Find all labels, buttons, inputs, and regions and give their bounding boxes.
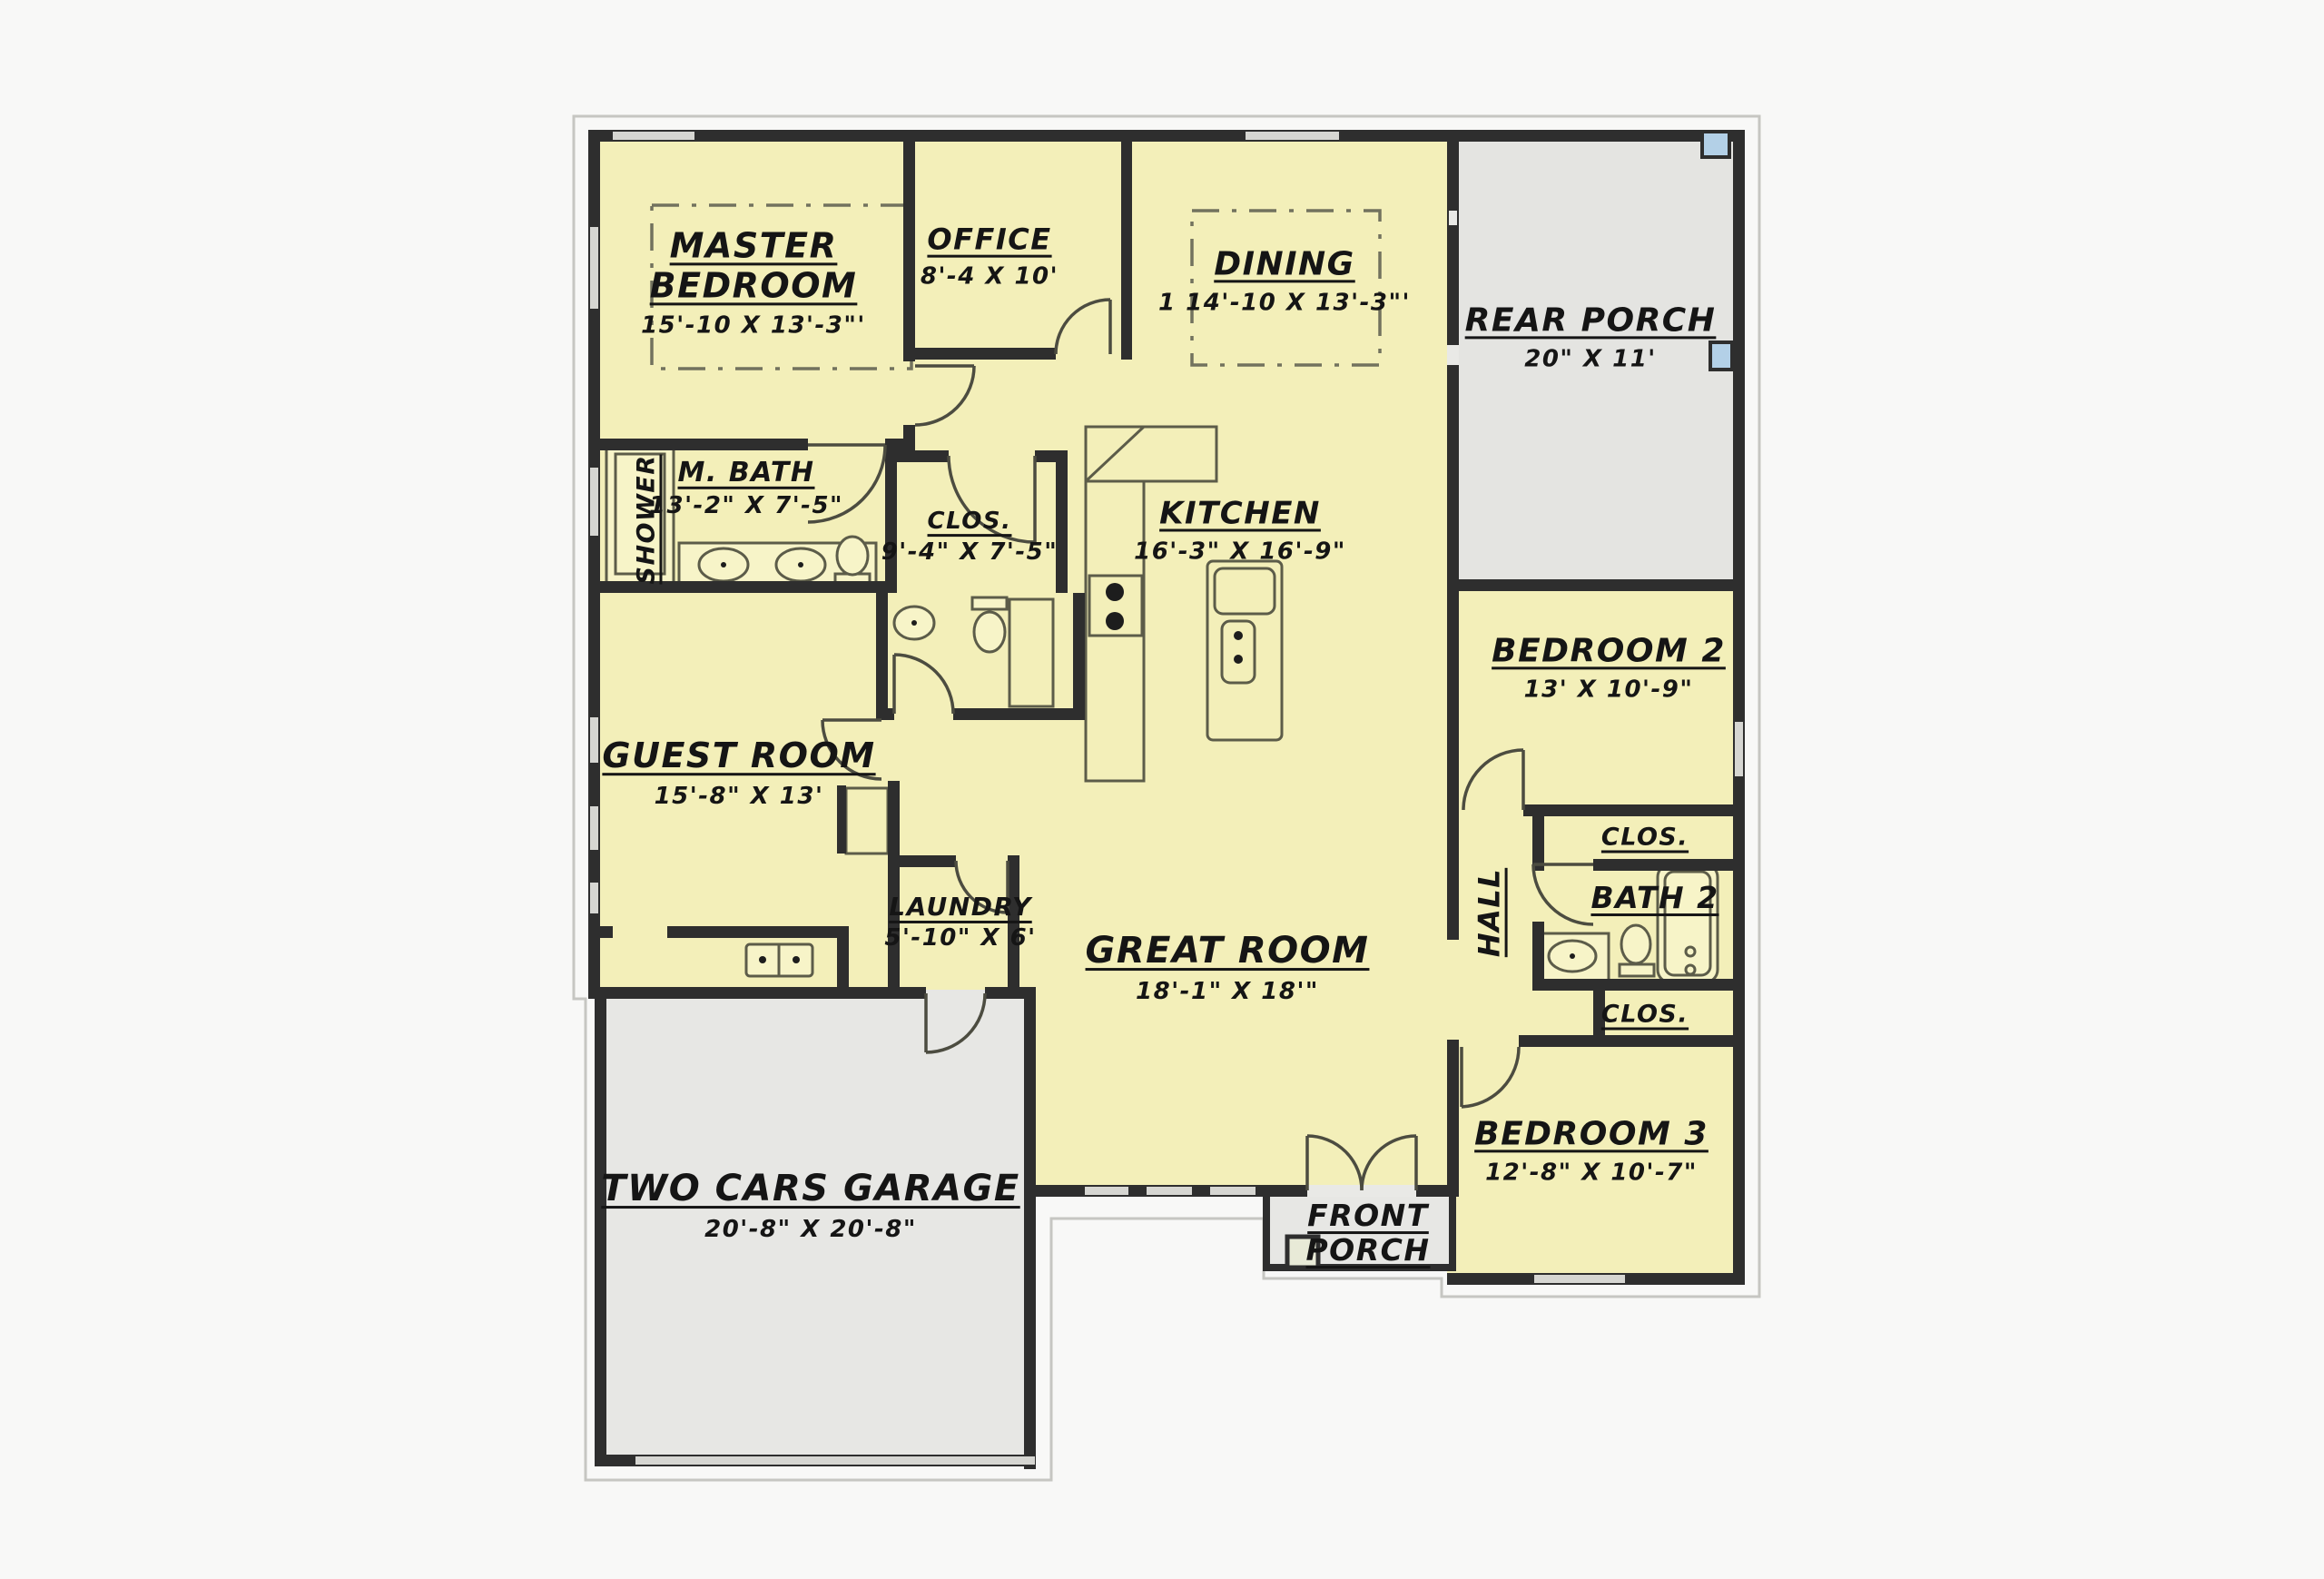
room-label-garage: TWO CARS GARAGE 20'-8" X 20'-8" [601, 1168, 1019, 1244]
room-name: CLOS. [1601, 1000, 1689, 1028]
window-guest-left-a [590, 717, 598, 763]
wall-garage-top-b [985, 987, 1036, 999]
room-name: BATH 2 [1590, 881, 1718, 915]
wall-closet-top-b [1035, 450, 1056, 462]
room-label-hall: HALL [1473, 868, 1507, 957]
wall-guest-bottom [667, 926, 849, 938]
room-dims: 1 14'-10 X 13'-3"' [1158, 291, 1411, 318]
room-label-rear-porch: REAR PORCH 20" X 11' [1465, 301, 1717, 373]
wall-wing-right [1733, 130, 1745, 1285]
wall-garage-top-a [588, 987, 926, 999]
wall-laundry-top [888, 855, 956, 867]
wall-office-right [1121, 142, 1132, 360]
wall-hallbath-bottom-b [953, 708, 1085, 720]
wall-top [588, 130, 1745, 142]
window-greatroom-b [1147, 1187, 1192, 1195]
room-dims: 13'-2" X 7'-5" [649, 492, 843, 519]
window-greatroom-c [1210, 1187, 1256, 1195]
wall-closTop-bath2 [1593, 859, 1745, 871]
toilet-tank-hall [972, 597, 1007, 609]
wall-bed2-bottom [1523, 804, 1745, 816]
window-greatroom-a [1085, 1187, 1128, 1195]
wall-guest-bottom-stub [600, 926, 613, 938]
window-shower-left [590, 468, 598, 536]
room-label-office: OFFICE 8'-4 X 10' [921, 223, 1059, 291]
wall-office-bottom [903, 348, 1056, 360]
room-dims: 12'-8" X 10'-7" [1474, 1160, 1709, 1188]
window-bed2-right [1735, 722, 1743, 776]
toilet-bowl-master [837, 537, 868, 575]
knob-dot [793, 956, 800, 963]
wall-hallbath-bottom-a [876, 708, 894, 720]
burner-dot [1106, 612, 1124, 630]
window-porch-divider-a [1449, 211, 1457, 225]
faucet-dot [721, 562, 726, 567]
door-porch-divider [1447, 345, 1459, 365]
room-dims: 16'-3" X 16'-9" [1134, 539, 1346, 567]
window-master-left [590, 227, 598, 309]
room-dims: 13' X 10'-9" [1492, 677, 1726, 705]
room-name: DINING [1158, 245, 1411, 282]
toilet-bowl-bath2 [1621, 925, 1650, 963]
wall-divider-lower [1447, 1040, 1459, 1197]
room-dims: 5'-10" X 6' [884, 925, 1036, 952]
room-label-closet-bottom: CLOS. [1601, 1000, 1689, 1028]
room-label-bath-2: BATH 2 [1590, 881, 1718, 915]
window-guest-left-b [590, 806, 598, 850]
faucet-dot [911, 620, 917, 626]
room-name: FRONT PORCH [1286, 1199, 1450, 1268]
room-name: SHOWER [632, 454, 660, 584]
window-dining-top [1246, 132, 1339, 140]
room-name: OFFICE [921, 223, 1059, 257]
room-name: MASTER BEDROOM [640, 226, 867, 305]
wall-divider-mid [1447, 365, 1459, 940]
burner-dot [1234, 655, 1243, 664]
room-label-laundry: LAUNDRY 5'-10" X 6' [884, 893, 1036, 952]
room-label-master-closet: CLOS. 9'-4" X 7'-5" [881, 508, 1059, 567]
wall-master-right-b [903, 425, 915, 450]
burner-dot [1234, 631, 1243, 640]
burner-dot [1106, 583, 1124, 601]
room-name: GUEST ROOM [602, 736, 875, 776]
room-name: CLOS. [881, 508, 1059, 536]
window-guest-left-c [590, 883, 598, 913]
room-name: M. BATH [649, 458, 843, 489]
wall-closTop-left [1532, 804, 1544, 871]
room-dims: 20" X 11' [1465, 347, 1717, 374]
room-dims: 20'-8" X 20'-8" [601, 1217, 1019, 1244]
room-label-m-bath: M. BATH 13'-2" X 7'-5" [649, 458, 843, 519]
room-name: REAR PORCH [1465, 301, 1717, 339]
room-label-guest-room: GUEST ROOM 15'-8" X 13' [602, 736, 875, 811]
room-name: LAUNDRY [884, 893, 1036, 922]
room-name: HALL [1473, 868, 1507, 957]
room-name: GREAT ROOM [1086, 930, 1370, 972]
garage-door-band [635, 1456, 1035, 1465]
room-label-dining: DINING 1 14'-10 X 13'-3"' [1158, 245, 1411, 317]
knob-dot [759, 956, 766, 963]
room-label-bedroom-2: BEDROOM 2 13' X 10'-9" [1492, 632, 1726, 704]
room-dims: 18'-1" X 18'" [1086, 979, 1370, 1006]
wall-mbath-top-a [588, 439, 808, 450]
wall-guest-closet-b [888, 781, 900, 867]
wall-divider-upper [1447, 130, 1459, 345]
wall-garage-right [1024, 990, 1036, 1469]
room-dims: 15'-10 X 13'-3"' [640, 313, 867, 340]
window-master-top [613, 132, 694, 140]
faucet-dot [798, 562, 803, 567]
wall-hallbath-right [1073, 593, 1085, 720]
porch-post-blue-a [1702, 132, 1729, 157]
room-label-bedroom-3: BEDROOM 3 12'-8" X 10'-7" [1474, 1115, 1709, 1187]
room-name: TWO CARS GARAGE [601, 1168, 1019, 1209]
room-label-great-room: GREAT ROOM 18'-1" X 18'" [1086, 930, 1370, 1006]
wall-porch-bed2 [1447, 579, 1745, 591]
room-name: KITCHEN [1134, 497, 1346, 532]
toilet-bowl-hall [974, 612, 1005, 652]
wall-bath2-bottom [1532, 979, 1745, 991]
room-dims: 8'-4 X 10' [921, 263, 1059, 291]
floor-plan-drawing [0, 0, 2324, 1579]
room-label-closet-top: CLOS. [1601, 823, 1689, 851]
wall-bath2-left [1532, 922, 1544, 991]
wall-master-right-a [903, 130, 915, 361]
wall-closBottom-bed3 [1519, 1035, 1745, 1047]
room-name: BEDROOM 2 [1492, 632, 1726, 669]
wall-guest-bottom-drop [837, 938, 849, 990]
room-name: BEDROOM 3 [1474, 1115, 1709, 1152]
room-label-master-bedroom: MASTER BEDROOM 15'-10 X 13'-3"' [640, 226, 867, 340]
window-bed3-bottom [1534, 1275, 1625, 1283]
wall-hallbath-left [876, 593, 888, 720]
room-name: CLOS. [1601, 823, 1689, 851]
faucet-dot [1570, 953, 1575, 959]
room-label-kitchen: KITCHEN 16'-3" X 16'-9" [1134, 497, 1346, 567]
room-dims: 15'-8" X 13' [602, 784, 875, 811]
floor-plan-page: MASTER BEDROOM 15'-10 X 13'-3"' OFFICE 8… [0, 0, 2324, 1579]
toilet-tank-bath2 [1620, 964, 1654, 976]
room-dims: 9'-4" X 7'-5" [881, 539, 1059, 567]
room-label-shower: SHOWER [632, 454, 660, 584]
room-label-front-porch: FRONT PORCH [1286, 1199, 1450, 1268]
